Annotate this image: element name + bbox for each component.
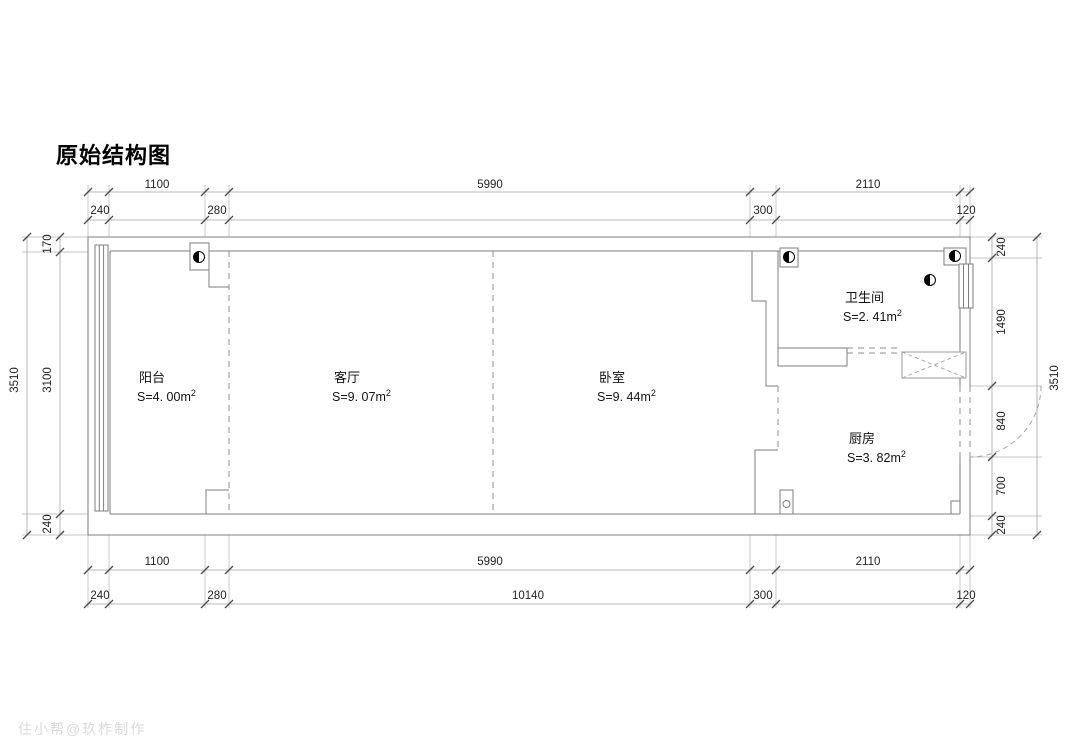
room-area-sup: 2: [651, 388, 656, 398]
dim-label: 170: [42, 234, 54, 253]
room-area-bedroom: S=9. 44m2: [597, 388, 656, 404]
dim-label: 240: [996, 515, 1008, 534]
dim-label: 280: [207, 590, 226, 602]
room-area-value: S=3. 82m: [847, 451, 901, 465]
dim-label: 120: [956, 590, 975, 602]
room-area-sup: 2: [191, 388, 196, 398]
room-area-balcony: S=4. 00m2: [137, 388, 196, 404]
room-area-sup: 2: [901, 449, 906, 459]
floor-plan-svg: 1100 5990 2110 240 280 300 120 1100 5990…: [0, 0, 1080, 756]
room-area-value: S=9. 07m: [332, 390, 386, 404]
datum-marker-icon: [784, 252, 795, 263]
room-area-value: S=4. 00m: [137, 390, 191, 404]
dim-label: 5990: [477, 179, 503, 191]
room-labels: 阳台 S=4. 00m2 客厅 S=9. 07m2 卧室 S=9. 44m2 卫…: [137, 290, 906, 465]
room-area-bathroom: S=2. 41m2: [843, 308, 902, 324]
wall-pillars: [190, 243, 966, 270]
room-name-living: 客厅: [334, 370, 360, 385]
dim-label: 5990: [477, 556, 503, 568]
room-name-bathroom: 卫生间: [845, 290, 884, 305]
datum-marker-icons: [194, 251, 961, 286]
dim-label: 1100: [145, 556, 170, 568]
dim-label: 240: [90, 590, 109, 602]
watermark: 住小帮@玖柞制作: [18, 719, 146, 739]
window-symbol-left: [95, 245, 108, 511]
room-area-value: S=2. 41m: [843, 310, 897, 324]
dim-label: 240: [996, 237, 1008, 256]
room-name-balcony: 阳台: [139, 370, 165, 385]
room-area-sup: 2: [897, 308, 902, 318]
room-area-living: S=9. 07m2: [332, 388, 391, 404]
dim-label: 240: [90, 205, 109, 217]
room-name-bedroom: 卧室: [599, 370, 625, 385]
room-area-sup: 2: [386, 388, 391, 398]
dim-label: 1490: [996, 309, 1008, 335]
dim-label: 1100: [145, 179, 170, 191]
dim-label: 2110: [856, 179, 881, 191]
floor-plan-page: 原始结构图: [0, 0, 1080, 756]
dim-label: 2110: [856, 556, 881, 568]
wall-outline: [88, 237, 970, 535]
datum-marker-icon: [925, 275, 936, 286]
dim-label: 10140: [512, 590, 544, 602]
datum-marker-icon: [194, 252, 205, 263]
room-area-value: S=9. 44m: [597, 390, 651, 404]
room-name-kitchen: 厨房: [849, 431, 875, 446]
datum-marker-icon: [950, 251, 961, 262]
dim-label: 840: [996, 411, 1008, 430]
dim-label: 300: [753, 205, 772, 217]
dim-label: 300: [753, 590, 772, 602]
dim-label: 120: [956, 205, 975, 217]
room-area-kitchen: S=3. 82m2: [847, 449, 906, 465]
drain-pipe-symbol: [780, 490, 793, 514]
dim-label: 3510: [1049, 365, 1061, 391]
dim-label: 700: [996, 476, 1008, 495]
dim-label: 240: [42, 514, 54, 533]
dim-label: 3510: [9, 367, 21, 393]
dim-label: 3100: [42, 367, 54, 393]
dim-label: 280: [207, 205, 226, 217]
flue-duct-symbol: [902, 352, 966, 378]
window-symbol-right: [959, 264, 973, 308]
